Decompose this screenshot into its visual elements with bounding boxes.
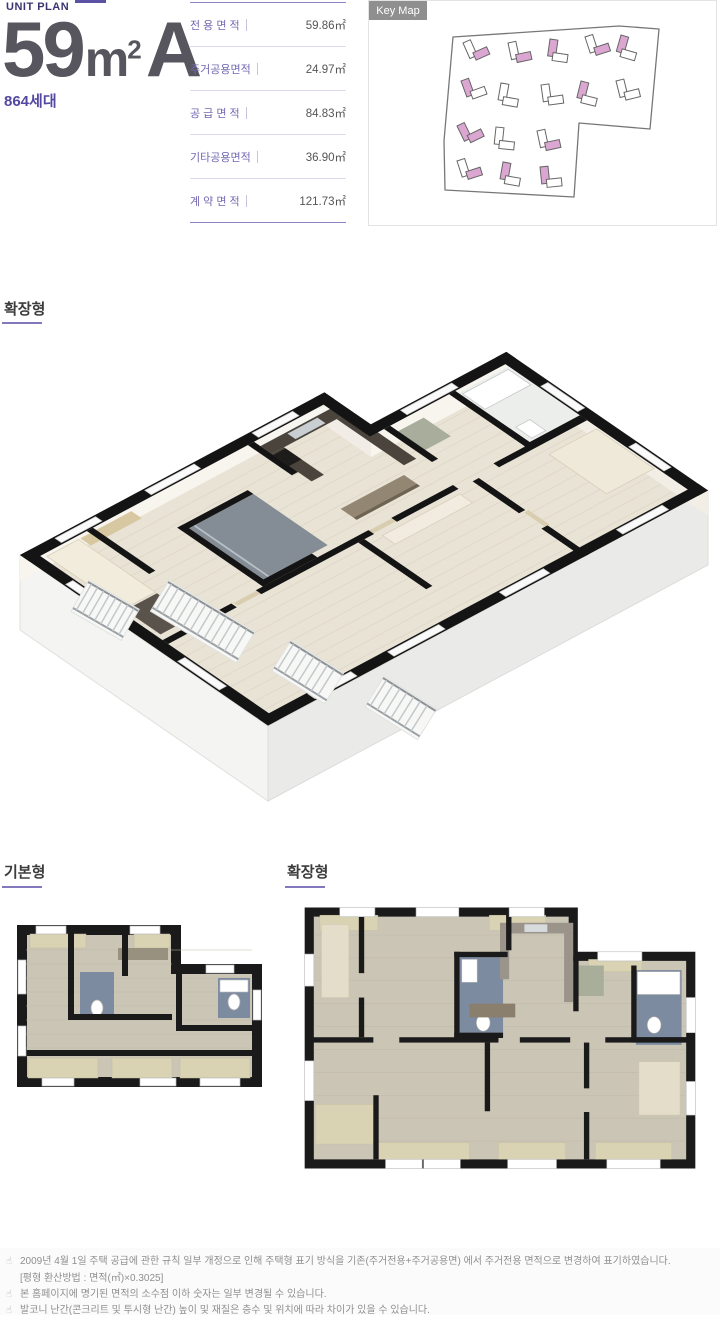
expanded-floorplan: [300, 906, 700, 1170]
keymap-site-plan: [369, 1, 716, 225]
table-row: 기타공용면적 36.90㎡: [190, 135, 346, 179]
households-count: 864세대: [4, 90, 57, 111]
divider: [246, 195, 247, 207]
row-value: 24.97㎡: [264, 61, 346, 77]
unit-title: 59 m2 A: [2, 10, 202, 88]
basic-label-underline: [2, 886, 42, 888]
table-row: 공 급 면 적 84.83㎡: [190, 91, 346, 135]
basic-floorplan: [14, 922, 276, 1094]
iso-floorplan-render: [0, 310, 720, 810]
footer-note: ☝ 발코니 난간(콘크리트 및 투시형 난간) 높이 및 재질은 층수 및 위치…: [6, 1305, 430, 1317]
divider: [246, 19, 247, 31]
row-label: 전 용 면 적: [190, 17, 240, 33]
divider: [257, 63, 258, 75]
footer-note: [평형 환산방법 : 면적(㎡)×0.3025]: [20, 1273, 163, 1285]
hand-point-icon: ☝: [6, 1289, 20, 1301]
hand-point-icon: ☝: [6, 1305, 20, 1317]
table-row: 주거공용면적 24.97㎡: [190, 47, 346, 91]
table-row: 계 약 면 적 121.73㎡: [190, 179, 346, 222]
row-value: 84.83㎡: [253, 105, 346, 121]
tab-indicator-line: [75, 0, 106, 3]
row-label: 계 약 면 적: [190, 193, 240, 209]
row-value: 121.73㎡: [253, 193, 346, 209]
row-label: 공 급 면 적: [190, 105, 240, 121]
table-row: 전 용 면 적 59.86㎡: [190, 3, 346, 47]
unit-size-unit: m2: [85, 34, 142, 84]
divider: [257, 151, 258, 163]
area-table: 전 용 면 적 59.86㎡ 주거공용면적 24.97㎡ 공 급 면 적 84.…: [190, 2, 346, 223]
unit-size-number: 59: [2, 10, 83, 88]
row-value: 36.90㎡: [264, 149, 346, 165]
footer-notes: ☝ 2009년 4월 1일 주택 공급에 관한 규칙 일부 개정으로 인해 주택…: [0, 1248, 720, 1315]
keymap-badge: Key Map: [369, 1, 427, 20]
keymap-panel: Key Map: [368, 0, 717, 226]
expanded-plan-label: 확장형: [287, 861, 328, 882]
row-label: 기타공용면적: [190, 149, 251, 165]
expanded-label-underline: [285, 886, 325, 888]
basic-plan-label: 기본형: [4, 861, 45, 882]
row-value: 59.86㎡: [253, 17, 346, 33]
footer-note: ☝ 2009년 4월 1일 주택 공급에 관한 규칙 일부 개정으로 인해 주택…: [6, 1256, 671, 1268]
divider: [246, 107, 247, 119]
hand-point-icon: ☝: [6, 1256, 20, 1268]
row-label: 주거공용면적: [190, 61, 251, 77]
footer-note: ☝ 본 홈페이지에 명기된 면적의 소수점 이하 숫자는 일부 변경될 수 있습…: [6, 1289, 327, 1301]
